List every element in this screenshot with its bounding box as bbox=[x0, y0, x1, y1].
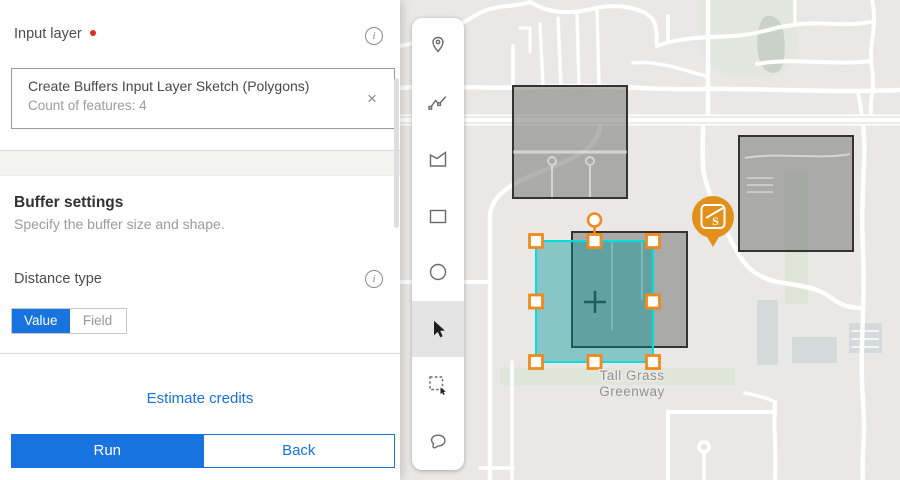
polygon-icon bbox=[427, 148, 449, 170]
sketch-layer-marker[interactable]: S bbox=[692, 196, 734, 247]
map-place-label: Tall Grass Greenway bbox=[599, 368, 665, 399]
distance-type-value-button[interactable]: Value bbox=[12, 309, 70, 333]
point-tool-button[interactable] bbox=[412, 18, 464, 75]
polygon-tool-button[interactable] bbox=[412, 131, 464, 188]
panel-scrollbar[interactable] bbox=[394, 78, 399, 228]
required-dot bbox=[90, 30, 96, 36]
action-buttons: Run Back bbox=[11, 434, 395, 468]
clear-selection-icon[interactable]: × bbox=[362, 89, 382, 109]
back-button[interactable]: Back bbox=[204, 434, 396, 468]
svg-text:Greenway: Greenway bbox=[599, 384, 665, 399]
select-tool-button[interactable] bbox=[412, 301, 464, 358]
input-layer-select[interactable]: Create Buffers Input Layer Sketch (Polyg… bbox=[11, 68, 395, 129]
polyline-tool-button[interactable] bbox=[412, 75, 464, 132]
distance-type-label: Distance type bbox=[14, 271, 102, 287]
tool-parameters-panel: Input layer i Create Buffers Input Layer… bbox=[0, 0, 400, 480]
building-blob bbox=[792, 337, 837, 363]
estimate-credits-link[interactable]: Estimate credits bbox=[0, 390, 400, 407]
svg-text:Tall Grass: Tall Grass bbox=[599, 368, 664, 383]
input-layer-value: Create Buffers Input Layer Sketch (Polyg… bbox=[28, 78, 360, 94]
cursor-icon bbox=[427, 318, 449, 340]
input-layer-info-icon[interactable]: i bbox=[365, 27, 383, 45]
rectangle-tool-button[interactable] bbox=[412, 188, 464, 245]
map-canvas[interactable]: S Tall Grass Greenway bbox=[400, 0, 900, 480]
run-button[interactable]: Run bbox=[11, 434, 204, 468]
circle-tool-button[interactable] bbox=[412, 244, 464, 301]
draw-toolbar bbox=[412, 18, 464, 470]
input-layer-meta: Count of features: 4 bbox=[28, 98, 360, 113]
parking-lot bbox=[849, 323, 882, 353]
circle-icon bbox=[427, 261, 449, 283]
distance-type-field-button[interactable]: Field bbox=[70, 309, 126, 333]
section-separator bbox=[0, 150, 400, 176]
sketch-polygon-2 bbox=[739, 136, 853, 251]
polyline-icon bbox=[427, 92, 449, 114]
input-layer-label: Input layer bbox=[14, 26, 96, 42]
marker-glyph: S bbox=[712, 214, 719, 228]
lasso-select-tool-button[interactable] bbox=[412, 414, 464, 471]
rectangle-icon bbox=[427, 205, 449, 227]
distance-type-info-icon[interactable]: i bbox=[365, 270, 383, 288]
footer-divider bbox=[0, 353, 400, 354]
buffer-settings-title: Buffer settings bbox=[14, 194, 123, 212]
sketch-polygon-1 bbox=[513, 86, 627, 198]
select-by-rectangle-icon bbox=[427, 374, 449, 396]
distance-type-toggle: Value Field bbox=[11, 308, 127, 334]
building-blob bbox=[757, 300, 778, 365]
select-by-rectangle-tool-button[interactable] bbox=[412, 357, 464, 414]
point-icon bbox=[427, 35, 449, 57]
lasso-icon bbox=[427, 431, 449, 453]
buffer-settings-subtitle: Specify the buffer size and shape. bbox=[14, 216, 225, 232]
